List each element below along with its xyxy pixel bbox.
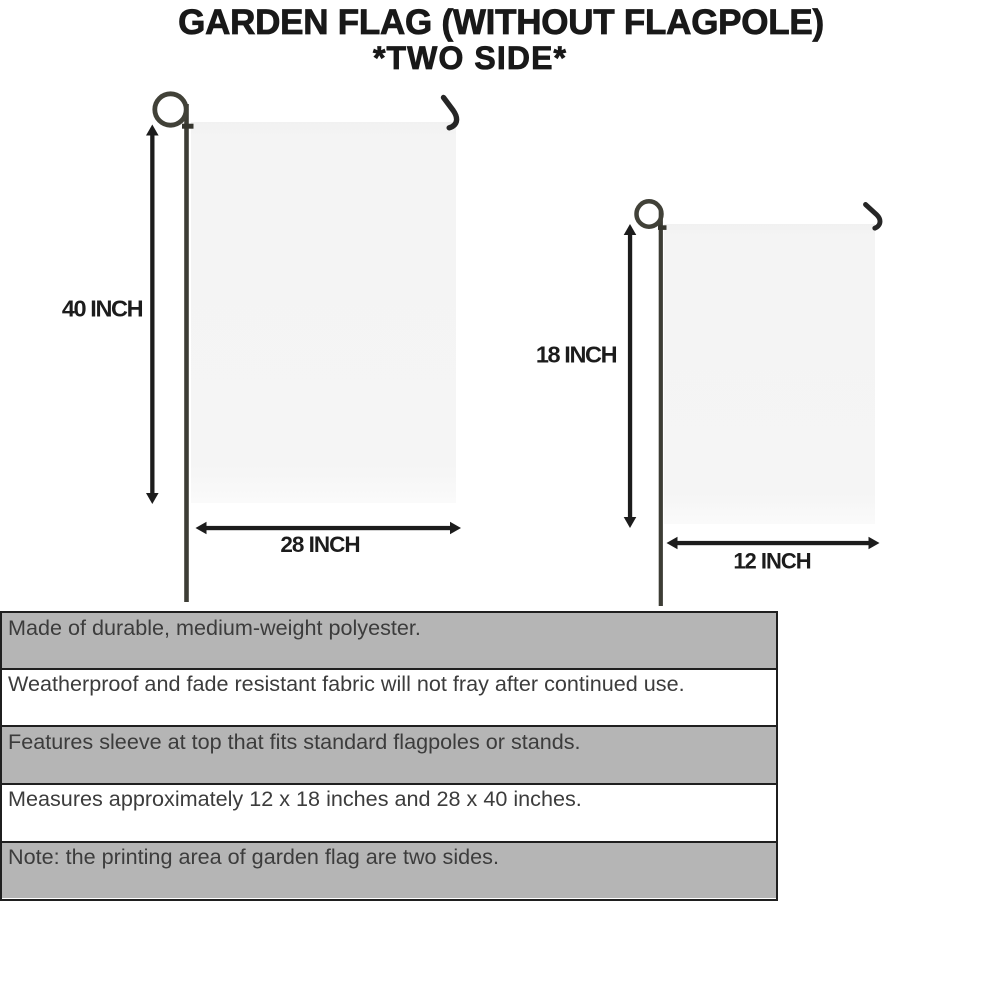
- svg-text:12 INCH: 12 INCH: [733, 549, 810, 574]
- svg-text:28 INCH: 28 INCH: [280, 532, 359, 557]
- svg-text:40 INCH: 40 INCH: [62, 296, 143, 322]
- svg-text:18 INCH: 18 INCH: [536, 342, 617, 368]
